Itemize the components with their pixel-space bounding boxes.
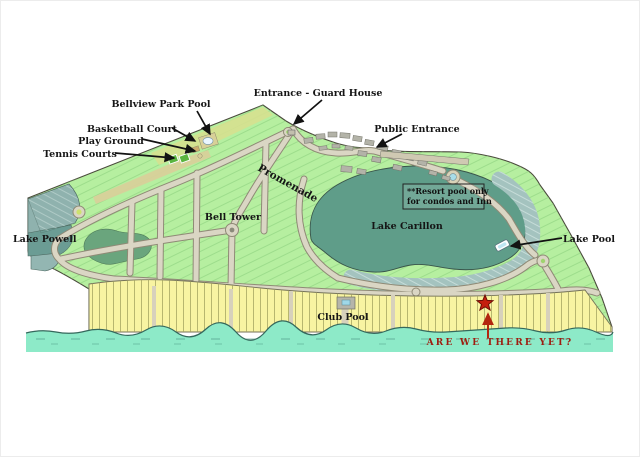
label-bellview-park-pool: Bellview Park Pool bbox=[111, 99, 210, 110]
label-bell-tower: Bell Tower bbox=[205, 212, 262, 223]
label-lake-powell: Lake Powell bbox=[13, 234, 77, 245]
destination-caption: ARE WE THERE YET? bbox=[426, 338, 574, 348]
resort-map: **Resort pool only for condos and Inn Be… bbox=[1, 1, 640, 457]
label-play-ground: Play Ground bbox=[78, 136, 144, 147]
resort-pool-note-line2: for condos and Inn bbox=[407, 196, 492, 206]
play-ground-site bbox=[198, 154, 202, 158]
label-tennis-courts: Tennis Courts bbox=[43, 149, 117, 160]
resort-pool-note: **Resort pool only for condos and Inn bbox=[403, 184, 492, 209]
resort-pool bbox=[450, 174, 457, 181]
label-basketball-court: Basketball Court bbox=[87, 124, 178, 135]
label-club-pool: Club Pool bbox=[317, 312, 369, 323]
guard-house-building bbox=[288, 130, 295, 135]
resort-pool-note-line1: **Resort pool only bbox=[407, 186, 489, 196]
map-page: **Resort pool only for condos and Inn Be… bbox=[0, 0, 640, 457]
label-public-entrance: Public Entrance bbox=[374, 124, 459, 135]
label-lake-carillon: Lake Carillon bbox=[371, 221, 443, 232]
bell-tower-structure bbox=[230, 228, 235, 233]
club-pool-site bbox=[337, 297, 355, 309]
label-lake-pool: Lake Pool bbox=[563, 234, 615, 245]
label-entrance-guard-house: Entrance - Guard House bbox=[254, 88, 383, 99]
